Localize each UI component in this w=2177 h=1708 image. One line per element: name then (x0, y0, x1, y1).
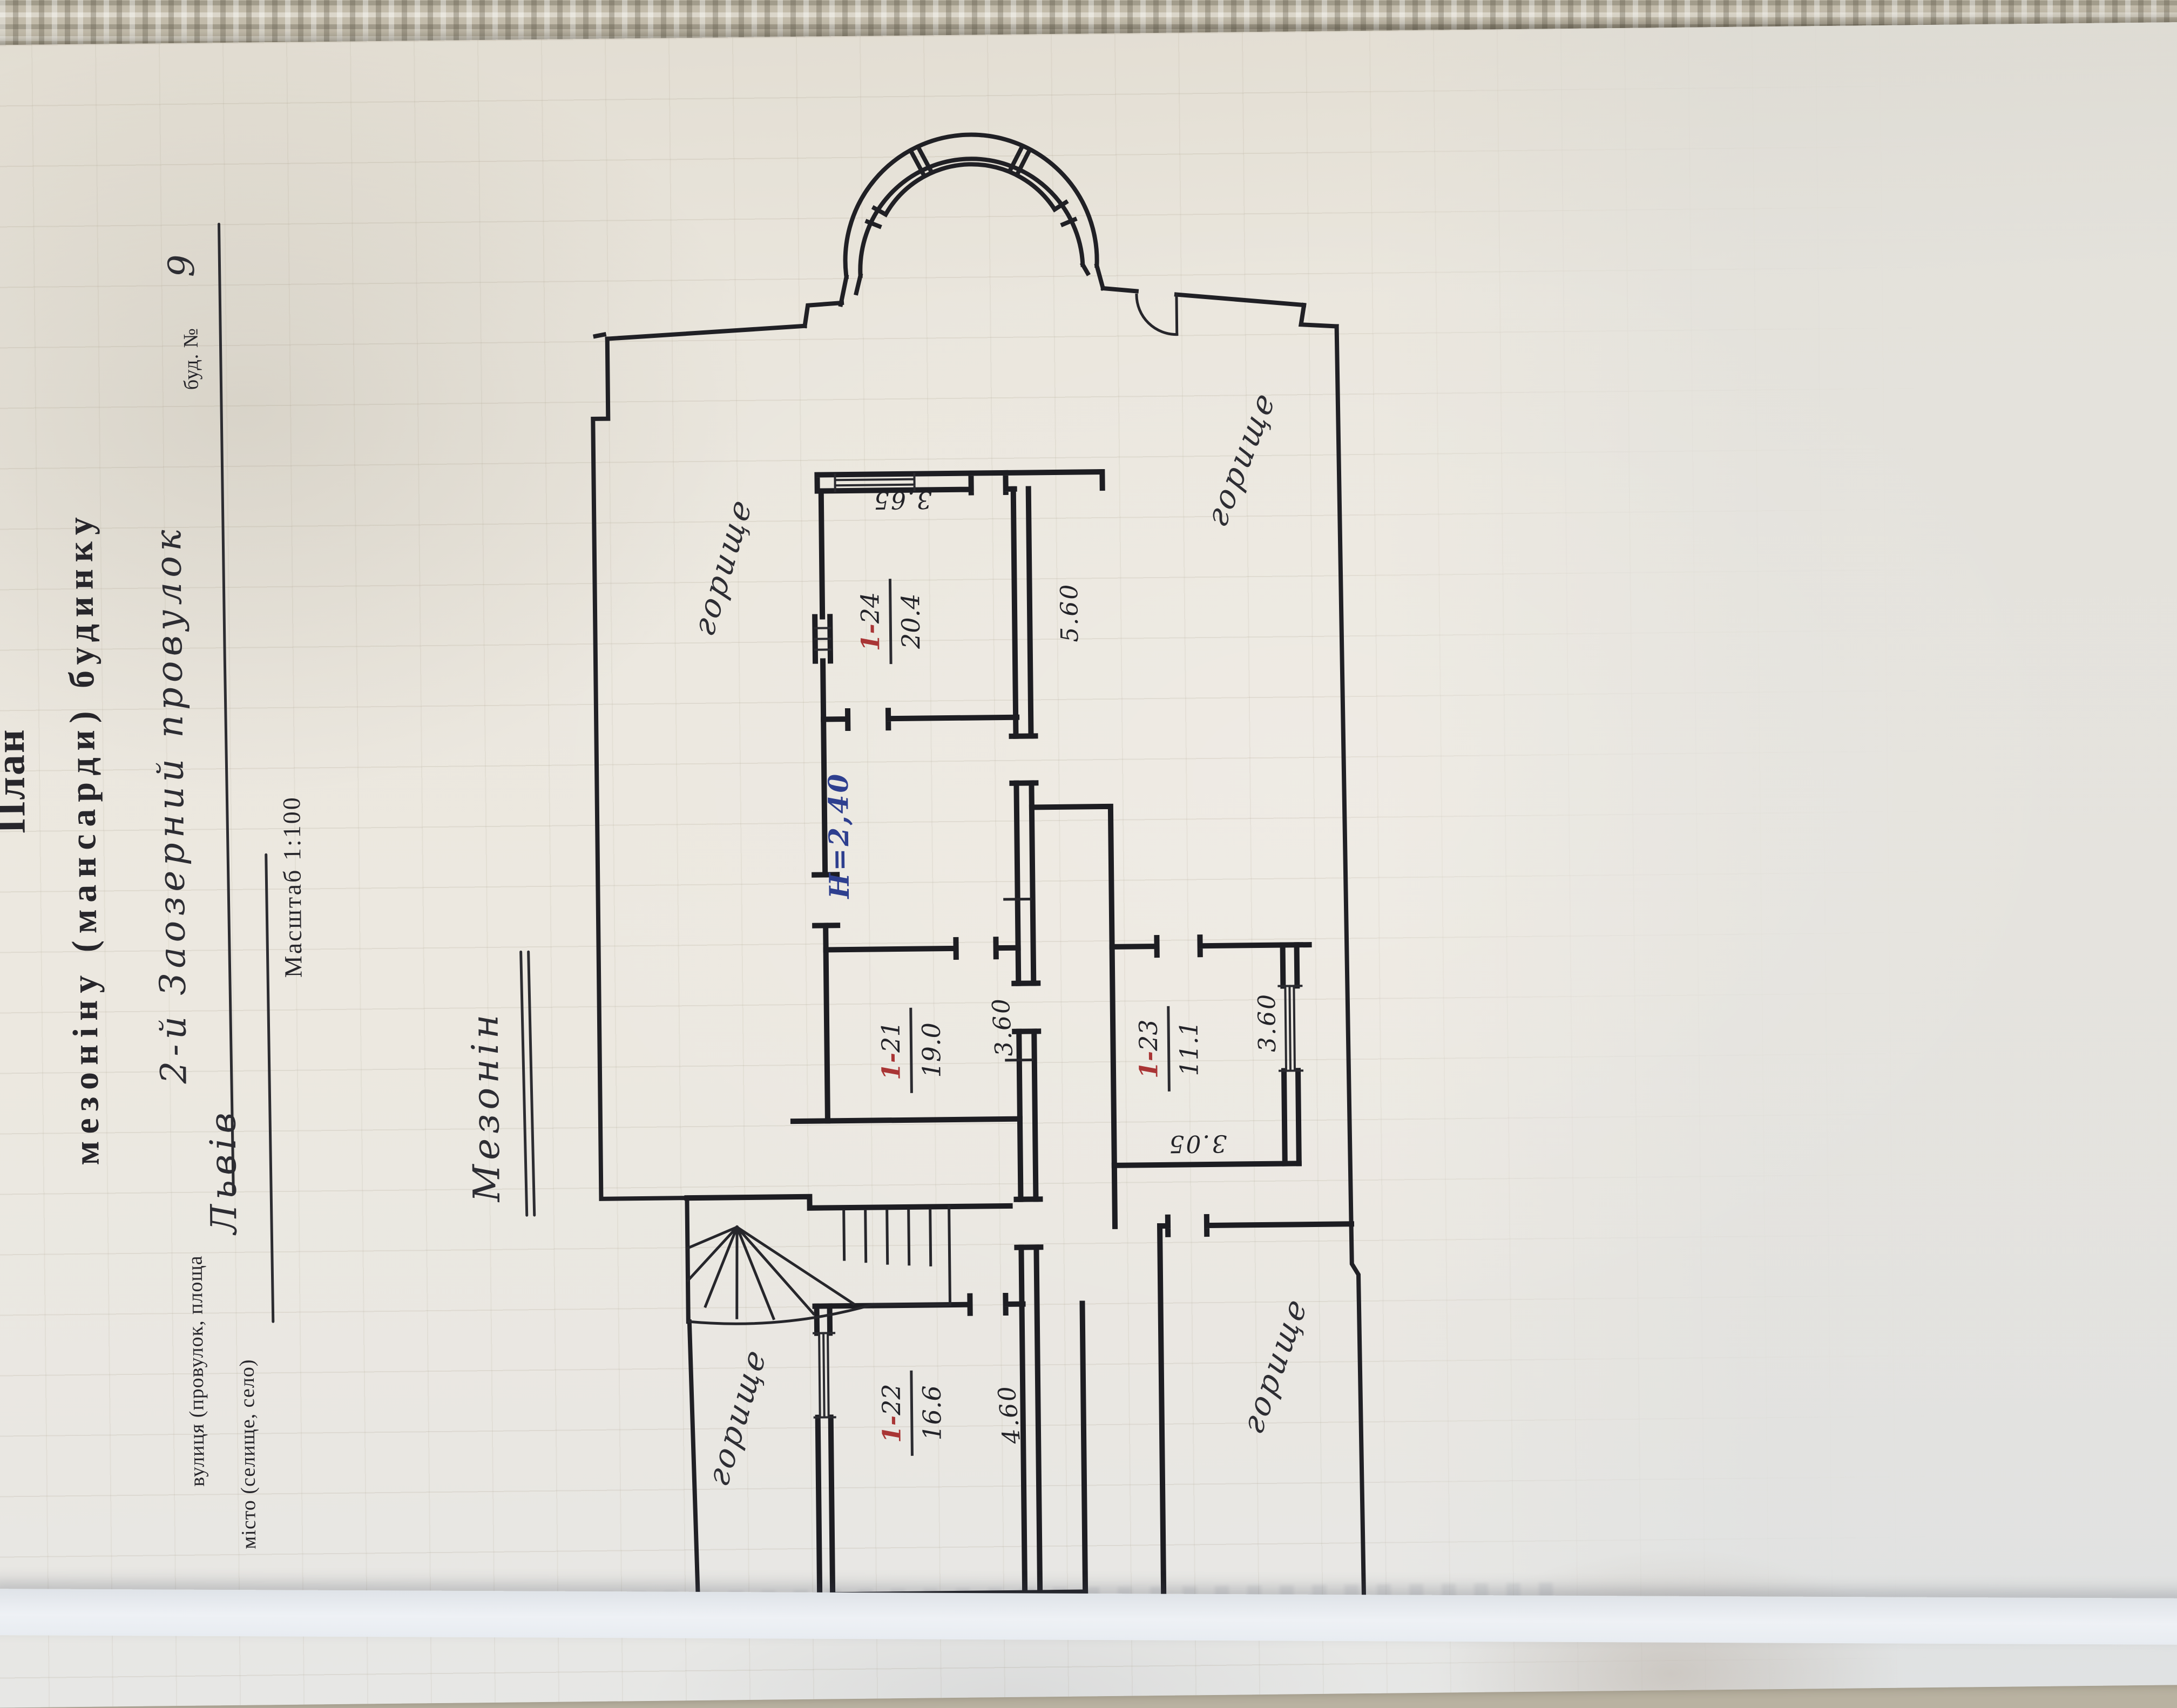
room-label-1-24: 1-24 20.4 (855, 578, 926, 664)
room-label-1-23: 1-23 11.1 (1133, 1006, 1204, 1092)
room-number: 1-23 (1134, 1019, 1164, 1079)
bay-arc (839, 133, 1103, 304)
room-number: 1-22 (877, 1384, 907, 1443)
floor-plan-drawing (0, 23, 2161, 1678)
room-area: 16.6 (917, 1385, 947, 1441)
room-area: 11.1 (1174, 1021, 1204, 1076)
dim-room23-depth: 3.60 (1253, 993, 1281, 1052)
dim-room23-width: 3.05 (1167, 1129, 1227, 1157)
dim-room24-depth: 5.60 (1056, 582, 1084, 642)
form-rule-lines (219, 221, 535, 1322)
height-note: Н=2,40 (822, 771, 855, 899)
fraction-bar (910, 1371, 914, 1456)
fraction-bar (889, 579, 893, 664)
room-area: 19.0 (917, 1022, 946, 1078)
dim-room21-width: 3.60 (987, 997, 1018, 1058)
room-area: 20.4 (896, 593, 925, 649)
fraction-bar (1167, 1006, 1171, 1092)
room-number: 1-24 (855, 592, 885, 651)
fraction-bar (909, 1008, 913, 1093)
dim-room24-width: 3.65 (873, 486, 932, 514)
underlying-sheet-edge (0, 1589, 2177, 1645)
paper-sheet: План мезоніну (мансарди) будинку вулиця … (0, 22, 2177, 1708)
room-label-1-21: 1-21 19.0 (876, 1007, 946, 1093)
room-number: 1-21 (876, 1021, 906, 1080)
dim-room22-depth: 4.60 (993, 1384, 1026, 1445)
room-label-1-22: 1-22 16.6 (876, 1370, 947, 1456)
door-symbols (1137, 295, 1177, 335)
